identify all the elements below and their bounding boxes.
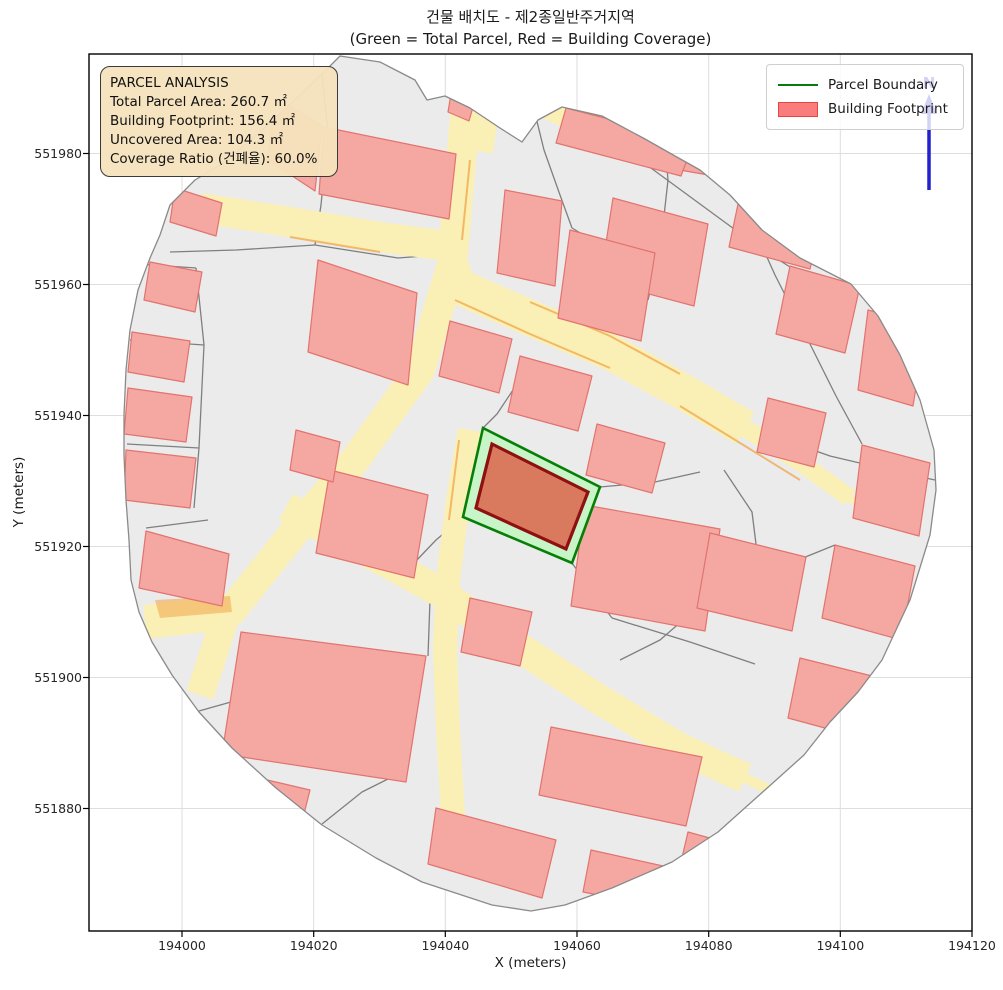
building-polygon (497, 190, 562, 286)
parcel-boundary-line-swatch (778, 84, 818, 86)
building-footprint-patch-swatch (778, 102, 818, 117)
title-line-korean: 건물 배치도 - 제2종일반주거지역 (89, 6, 972, 28)
x-tick-label: 194040 (405, 938, 485, 953)
parcel-analysis-uncovered: Uncovered Area: 104.3 ㎡ (110, 131, 328, 150)
legend-label-building-footprint: Building Footprint (828, 101, 948, 117)
legend-item-building-footprint: Building Footprint (774, 97, 956, 121)
building-polygon (738, 818, 788, 862)
x-tick-label: 194000 (142, 938, 222, 953)
x-tick-label: 194060 (537, 938, 617, 953)
parcel-analysis-title: PARCEL ANALYSIS (110, 74, 328, 93)
x-axis-label: X (meters) (89, 955, 972, 971)
legend-item-parcel-boundary: Parcel Boundary (774, 73, 956, 97)
y-tick-label: 551920 (18, 539, 82, 554)
plot-title: 건물 배치도 - 제2종일반주거지역 (Green = Total Parcel… (89, 6, 972, 50)
x-tick-label: 194080 (669, 938, 749, 953)
building-polygon (124, 450, 196, 508)
parcel-analysis-coverage-ratio: Coverage Ratio (건폐율): 60.0% (110, 150, 328, 169)
y-axis-label: Y (meters) (11, 442, 27, 542)
map-clip-group (124, 56, 936, 911)
building-polygon (124, 388, 192, 442)
y-tick-label: 551940 (18, 408, 82, 423)
legend-label-parcel-boundary: Parcel Boundary (828, 77, 938, 93)
legend: Parcel Boundary Building Footprint (766, 64, 964, 130)
y-tick-label: 551980 (18, 146, 82, 161)
y-tick-label: 551880 (18, 801, 82, 816)
figure: N 건물 배치도 - 제2종일반주거지역 (Green = Total Parc… (0, 0, 1003, 990)
x-tick-label: 194120 (932, 938, 1003, 953)
title-line-subtitle: (Green = Total Parcel, Red = Building Co… (89, 28, 972, 50)
y-tick-label: 551960 (18, 277, 82, 292)
parcel-analysis-total-area: Total Parcel Area: 260.7 ㎡ (110, 93, 328, 112)
y-tick-label: 551900 (18, 670, 82, 685)
parcel-analysis-box: PARCEL ANALYSIS Total Parcel Area: 260.7… (100, 66, 338, 177)
x-tick-label: 194020 (274, 938, 354, 953)
parcel-analysis-footprint: Building Footprint: 156.4 ㎡ (110, 112, 328, 131)
x-tick-label: 194100 (800, 938, 880, 953)
